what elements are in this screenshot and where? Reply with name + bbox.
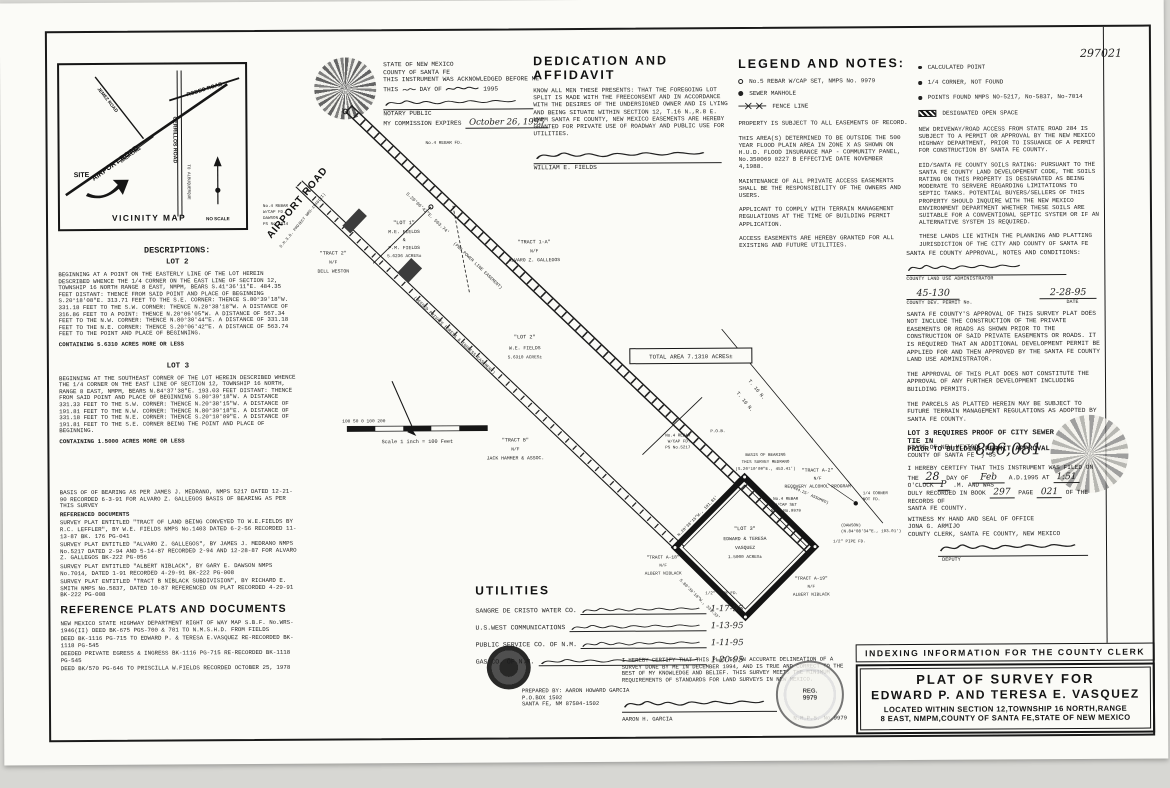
tracta19-owner: ALBERT NIBLACK — [793, 593, 830, 598]
rebar-dawson-2: W/CAP FD. — [263, 210, 286, 215]
utility-name: SANGRE DE CRISTO WATER CO. — [475, 607, 576, 616]
approval-date-label: DATE — [1066, 299, 1078, 305]
rebar-dawson-3: DAWSON — [263, 217, 279, 221]
vicinity-map: AIRPORT ROAD RODEO ROAD CERRILLOS ROAD T… — [57, 62, 248, 231]
surveyor-signature — [622, 695, 772, 712]
legend-item-open-space-label: DESIGNATED OPEN SPACE — [942, 109, 1018, 117]
rebar5217-1: No.4 REBAR — [665, 434, 691, 438]
scale-label: Scale 1 inch = 100 Feet — [382, 439, 454, 445]
lot2-owner: W.E. FIELDS — [509, 345, 541, 351]
vicinity-north-arrow-dot — [215, 188, 220, 193]
survey-drawing: 100 50 0 100 200 Scale 1 inch = 100 Feet… — [240, 83, 933, 652]
lot3-label: "LOT 3" — [734, 526, 756, 532]
basis-line-2: THIS SURVEY MEDRANO — [742, 461, 790, 465]
approval-title: SANTA FE COUNTY APPROVAL, NOTES AND COND… — [906, 249, 1102, 258]
title-line-2: EDWARD P. AND TERESA E. VASQUEZ — [861, 687, 1150, 703]
rebar5217-3: PS No.5217 — [665, 446, 691, 450]
vicinity-site-label: SITE — [74, 172, 90, 179]
recording-cert-text: I HEREBY CERTIFY THAT THIS INSTRUMENT WA… — [908, 464, 1108, 513]
legend-item-points-found: POINTS FOUND NMPS NO-5217, No-5837, No-7… — [918, 93, 1100, 101]
right-note-2: THESE LANDS LIE WITHIN THE PLANNING AND … — [919, 232, 1101, 248]
road-bearing-label: S.20°06'42"E. 563.74' — [404, 191, 450, 235]
surveyor-seal-number: 9979 — [778, 694, 842, 701]
vicinity-airport-road-line — [65, 84, 228, 195]
vicinity-to-abq-label: TO ALBUQUERQUE — [186, 164, 190, 200]
basis-line-1: BASIS OF BEARING — [745, 454, 786, 458]
surveyor-name: AARON H. GARCIA — [622, 715, 672, 722]
tracta19-label: "TRACT A-19" — [795, 576, 828, 582]
legend-item-calculated: CALCULATED POINT — [918, 63, 1100, 71]
lot2-label: "LOT 2" — [514, 334, 536, 340]
cert-page: 021 — [1037, 487, 1062, 498]
tract2-label: "TRACT 2" — [320, 250, 347, 256]
vicinity-jemez-label: JEMEZ ROAD — [96, 86, 119, 113]
cert-seg-5: .M. AND WAS — [953, 482, 994, 489]
total-area-label: TOTAL AREA 7.1310 ACRES± — [649, 353, 733, 361]
utilities-title: UTILITIES — [475, 582, 745, 598]
vicinity-map-title: VICINITY MAP — [112, 212, 186, 222]
lot1-label: "LOT 1" — [393, 220, 415, 226]
scale-bar: 100 50 0 100 200 Scale 1 inch = 100 Feet — [342, 418, 487, 446]
basis-line-3: (S.20°10'09"E., 453.41') — [735, 467, 795, 472]
recovery-tract-label: "TRACT A-2" — [802, 467, 834, 473]
surveyor-signature-line — [622, 695, 777, 713]
cert-seg-3: A.D.1995 AT — [1009, 474, 1050, 481]
utility-date: 1-17-95 — [711, 604, 744, 614]
rebar-set-1: No.4 REBAR — [773, 498, 799, 502]
quarter-corner-1: 1/4 CORNER — [863, 491, 889, 496]
dedication-title: DEDICATION AND AFFIDAVIT — [533, 53, 733, 82]
dawson-note-2: (N.84°08'34"E., 193.01') — [841, 529, 901, 534]
doc-number-handwritten: 297021 — [1080, 47, 1122, 60]
surveyor-seal: REG. 9979 — [776, 660, 844, 728]
vicinity-cerrillos-label: CERRILLOS ROAD — [171, 116, 177, 163]
approval-paragraph-0: SANTA FE COUNTY'S APPROVAL OF THIS SURVE… — [907, 309, 1103, 363]
legend-item-calculated-label: CALCULATED POINT — [928, 64, 986, 72]
tractb-label: "TRACT B" — [502, 437, 529, 443]
legend-item-quarter-corner: 1/4 CORNER, NOT FOUND — [918, 78, 1100, 86]
township-label-1: T. 16 N. — [746, 378, 766, 400]
dawson-note-1: (DAWSON) — [841, 523, 861, 528]
quarter-corner-point — [854, 501, 858, 505]
utility-name: PUBLIC SERVICE CO. OF N.M. — [476, 641, 577, 650]
site-arrow-icon — [86, 180, 129, 199]
approval-admin-label: COUNTY LAND USE ADMINISTRATOR — [906, 274, 1102, 281]
lot1-owner-2: P.M. FIELDS — [388, 245, 420, 251]
recording-state-block: STATE OF NEW MEXICO COUNTY OF SANTA FE }… — [907, 443, 1107, 459]
tract1a-owner: ALVARO Z. GALLEGOS — [508, 257, 560, 263]
approval-paragraph-1: THE APPROVAL OF THIS PLAT DOES NOT CONST… — [907, 370, 1103, 394]
vicinity-map-drawing: AIRPORT ROAD RODEO ROAD CERRILLOS ROAD T… — [59, 64, 245, 228]
utility-date: 1-13-95 — [711, 621, 744, 631]
lot3-acres: 1.5000 ACRES± — [728, 555, 763, 560]
recording-number-handwritten: 896,081 — [975, 439, 1041, 458]
right-note-1: EID/SANTA FE COUNTY SOILS RATING: PURSUA… — [919, 160, 1101, 226]
rebar-dawson-4: PS No.7014 — [263, 223, 289, 227]
deputy-signature — [938, 537, 1083, 555]
utility-signature-line — [581, 636, 707, 649]
reference-item-b2: DEEDED PRIVATE EGRESS & INGRESS BK-1116 … — [61, 650, 301, 665]
tractb-nf: N/F — [511, 446, 520, 452]
pob-label: P.O.B. — [710, 430, 725, 434]
lot3-owner-1: EDWARD & TERESA — [723, 536, 766, 542]
airport-road-band — [345, 103, 814, 557]
utility-signature-line — [569, 619, 707, 632]
lot2-acres: 5.6310 ACRES± — [508, 355, 543, 360]
calculated-point-symbol — [918, 66, 922, 70]
vicinity-no-scale-label: NO SCALE — [206, 216, 230, 221]
rebar-fd-label: No.4 REBAR FD. — [426, 141, 463, 146]
deputy-signature-line — [938, 537, 1088, 556]
scale-ticks: 100 50 0 100 200 — [342, 418, 386, 424]
approval-permit-labels: COUNTY DEV. PERMIT No. DATE — [907, 298, 1097, 305]
vicinity-cerrillos-line-2 — [181, 70, 182, 216]
legend-right-section: CALCULATED POINT 1/4 CORNER, NOT FOUND P… — [918, 63, 1101, 248]
prepared-by-block: PREPARED BY: AARON HOWARD GARCIA P.O.BOX… — [522, 688, 630, 708]
tract2-owner: DELL WESTON — [317, 268, 349, 274]
vicinity-jemez-road-line — [95, 77, 143, 139]
tractb-owner: JACK HAMMER & ASSOC. — [487, 455, 545, 461]
legend-item-quarter-label: 1/4 CORNER, NOT FOUND — [928, 79, 1004, 87]
tract2-nf: N/F — [329, 260, 338, 266]
lot1-amp: & — [403, 237, 406, 243]
tracta18-owner: ALBERT NIBLACK — [645, 571, 682, 576]
title-block-inner: PLAT OF SURVEY FOR EDWARD P. AND TERESA … — [860, 667, 1151, 731]
indexing-bar: INDEXING INFORMATION FOR THE COUNTY CLER… — [856, 643, 1155, 663]
recovery-nf: N/F — [814, 477, 822, 482]
legend-item-points-label: POINTS FOUND NMPS NO-5217, No-5837, No-7… — [928, 93, 1083, 101]
utility-date: 1-11-95 — [711, 638, 744, 648]
title-block: PLAT OF SURVEY FOR EDWARD P. AND TERESA … — [856, 663, 1155, 735]
tracta18-nf: N/F — [659, 563, 667, 568]
title-line-1: PLAT OF SURVEY FOR — [861, 671, 1150, 688]
recording-section: STATE OF NEW MEXICO COUNTY OF SANTA FE }… — [907, 443, 1108, 563]
rebar5217-2: W/CAP FD. — [668, 439, 691, 444]
indexing-label: INDEXING INFORMATION FOR THE COUNTY CLER… — [865, 647, 1145, 659]
scanned-plat-sheet: AIRPORT ROAD RODEO ROAD CERRILLOS ROAD T… — [0, 0, 1168, 766]
utility-row-water: SANGRE DE CRISTO WATER CO. 1-17-95 — [475, 602, 743, 616]
lot1-owner-1: M.E. FIELDS — [388, 229, 420, 235]
utility-signature — [581, 603, 707, 616]
utility-row-pnm: PUBLIC SERVICE CO. OF N.M. 1-11-95 — [476, 636, 744, 650]
tracta19-nf: N/F — [807, 585, 815, 590]
tract1a-label: "TRACT 1-A" — [518, 239, 551, 245]
vicinity-north-arrow-head — [214, 156, 222, 166]
pnm-easement-label: (PNM POWER LINE EASEMENT) — [452, 242, 503, 291]
pipe-found-1: 1/2" PIPE FD. — [833, 539, 866, 544]
utility-signature — [581, 637, 707, 650]
quarter-corner-2: NOT FD. — [863, 498, 881, 502]
lot1-acres: 5.6236 ACRES± — [387, 254, 422, 259]
township-label-2: T. 16 N. — [735, 391, 755, 413]
cert-seg-7: PAGE — [1018, 489, 1033, 496]
rebar-set-3: NMPS No.9979 — [771, 510, 802, 514]
tracta18-label: "TRACT A-18" — [647, 554, 680, 560]
rebar-set-2: W/CAP SET — [774, 503, 797, 508]
egress-easement-label: (DEEDED PRIVATE EGRESS & INGRESS EASEMEN… — [412, 296, 496, 376]
utility-name: GAS CO. OF N.M. — [476, 658, 535, 666]
approval-date: 2-28-95 — [1040, 286, 1097, 298]
lot-division-lines — [373, 203, 883, 526]
right-note-0: NEW DRIVEWAY/ROAD ACCESS FROM STATE ROAD… — [918, 125, 1100, 155]
utility-name: U.S.WEST COMMUNICATIONS — [475, 624, 565, 633]
utility-signature — [569, 620, 707, 633]
cert-book: 297 — [989, 487, 1014, 498]
utility-signature-line — [581, 602, 707, 615]
lot3-nw-bearing: N.20°38'15"W., 191.81' — [677, 495, 719, 538]
rebar-dawson-1: No.4 REBAR — [263, 205, 289, 209]
tract1a-nf: N/F — [530, 248, 539, 254]
legend-item-open-space: DESIGNATED OPEN SPACE — [918, 108, 1100, 116]
title-line-4: 8 EAST, NMPM,COUNTY OF SANTA FE,STATE OF… — [861, 713, 1150, 724]
cert-time: 1:51 — [1053, 472, 1079, 483]
legend-title: LEGEND AND NOTES: — [738, 56, 910, 71]
lot3-owner-2: VASQUEZ — [735, 545, 755, 551]
utility-row-uswest: U.S.WEST COMMUNICATIONS 1-13-95 — [475, 619, 743, 633]
